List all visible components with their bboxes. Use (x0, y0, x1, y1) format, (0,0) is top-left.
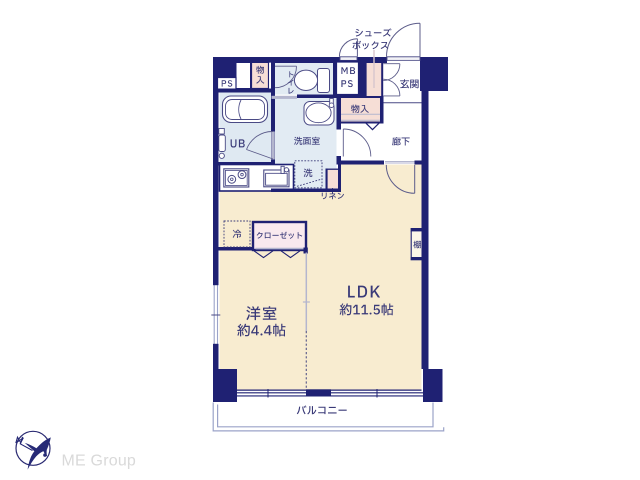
svg-text:ME Group: ME Group (62, 453, 137, 470)
